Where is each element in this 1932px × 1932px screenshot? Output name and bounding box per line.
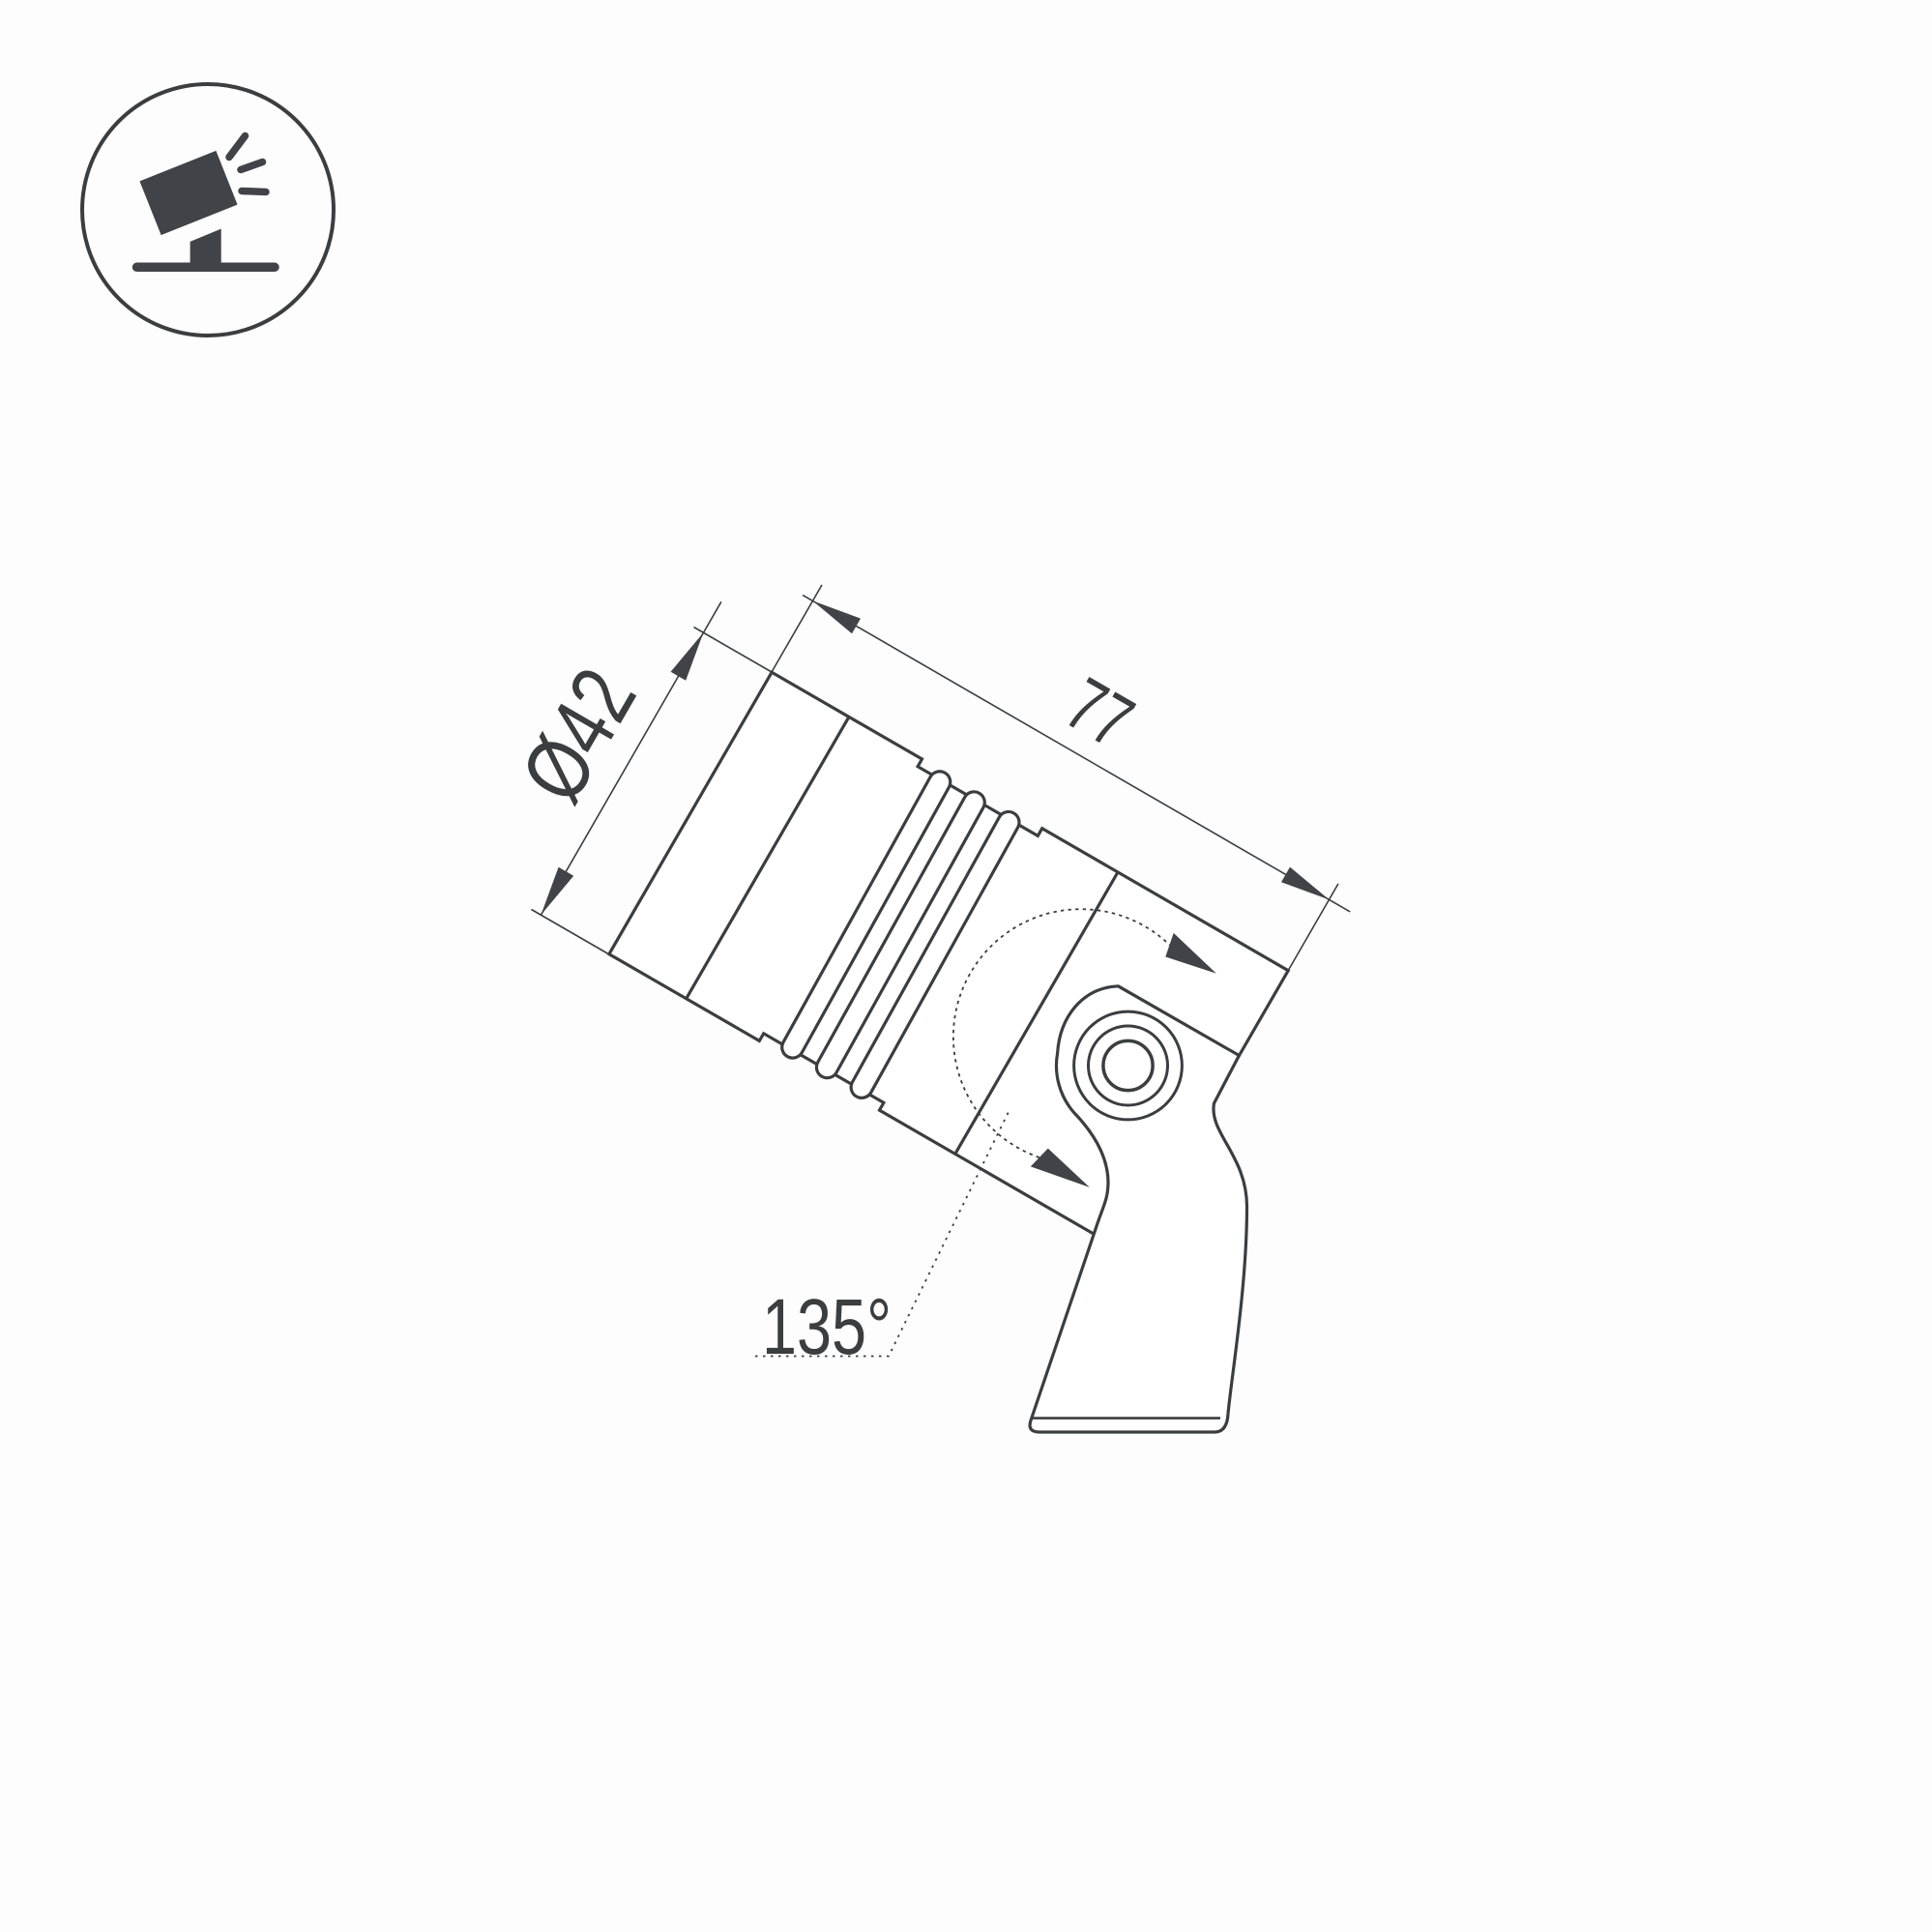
svg-text:Ø42: Ø42 xyxy=(503,653,655,818)
svg-text:77: 77 xyxy=(1053,661,1148,765)
svg-text:135°: 135° xyxy=(762,1283,892,1371)
